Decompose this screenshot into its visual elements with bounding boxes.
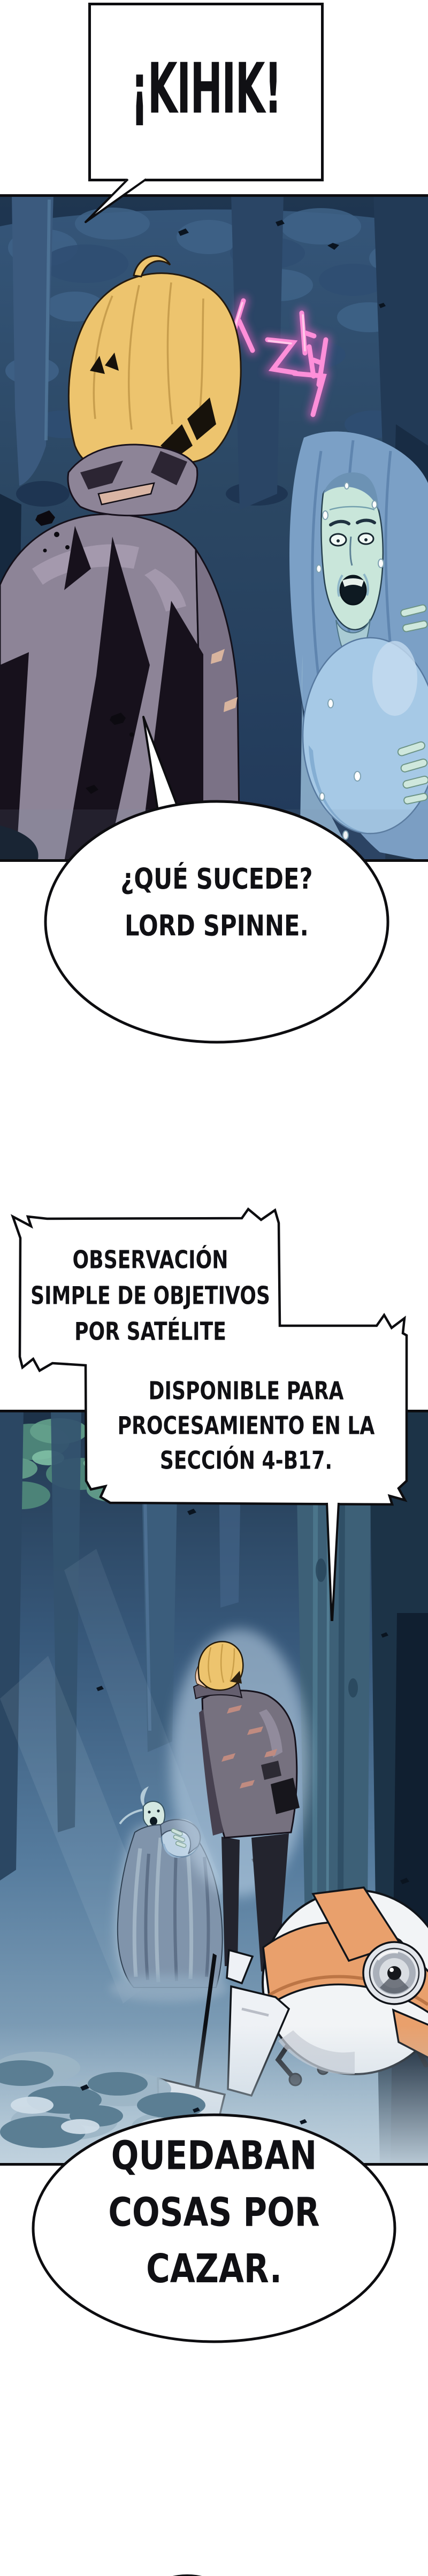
speech-bubble-que-sucede xyxy=(32,709,401,1051)
speech-bubble-quedaban xyxy=(27,2108,401,2349)
narration-boxes xyxy=(0,1204,428,1626)
comic-page: ¡KIHIK! ¿QUÉ SUCEDE? LORD SPINNE. xyxy=(0,0,428,2576)
jacket-collar xyxy=(68,445,197,516)
camera-lens xyxy=(363,1942,425,2004)
speech-box-kihik xyxy=(88,3,324,181)
speech-box-kihik-tail xyxy=(64,178,160,227)
